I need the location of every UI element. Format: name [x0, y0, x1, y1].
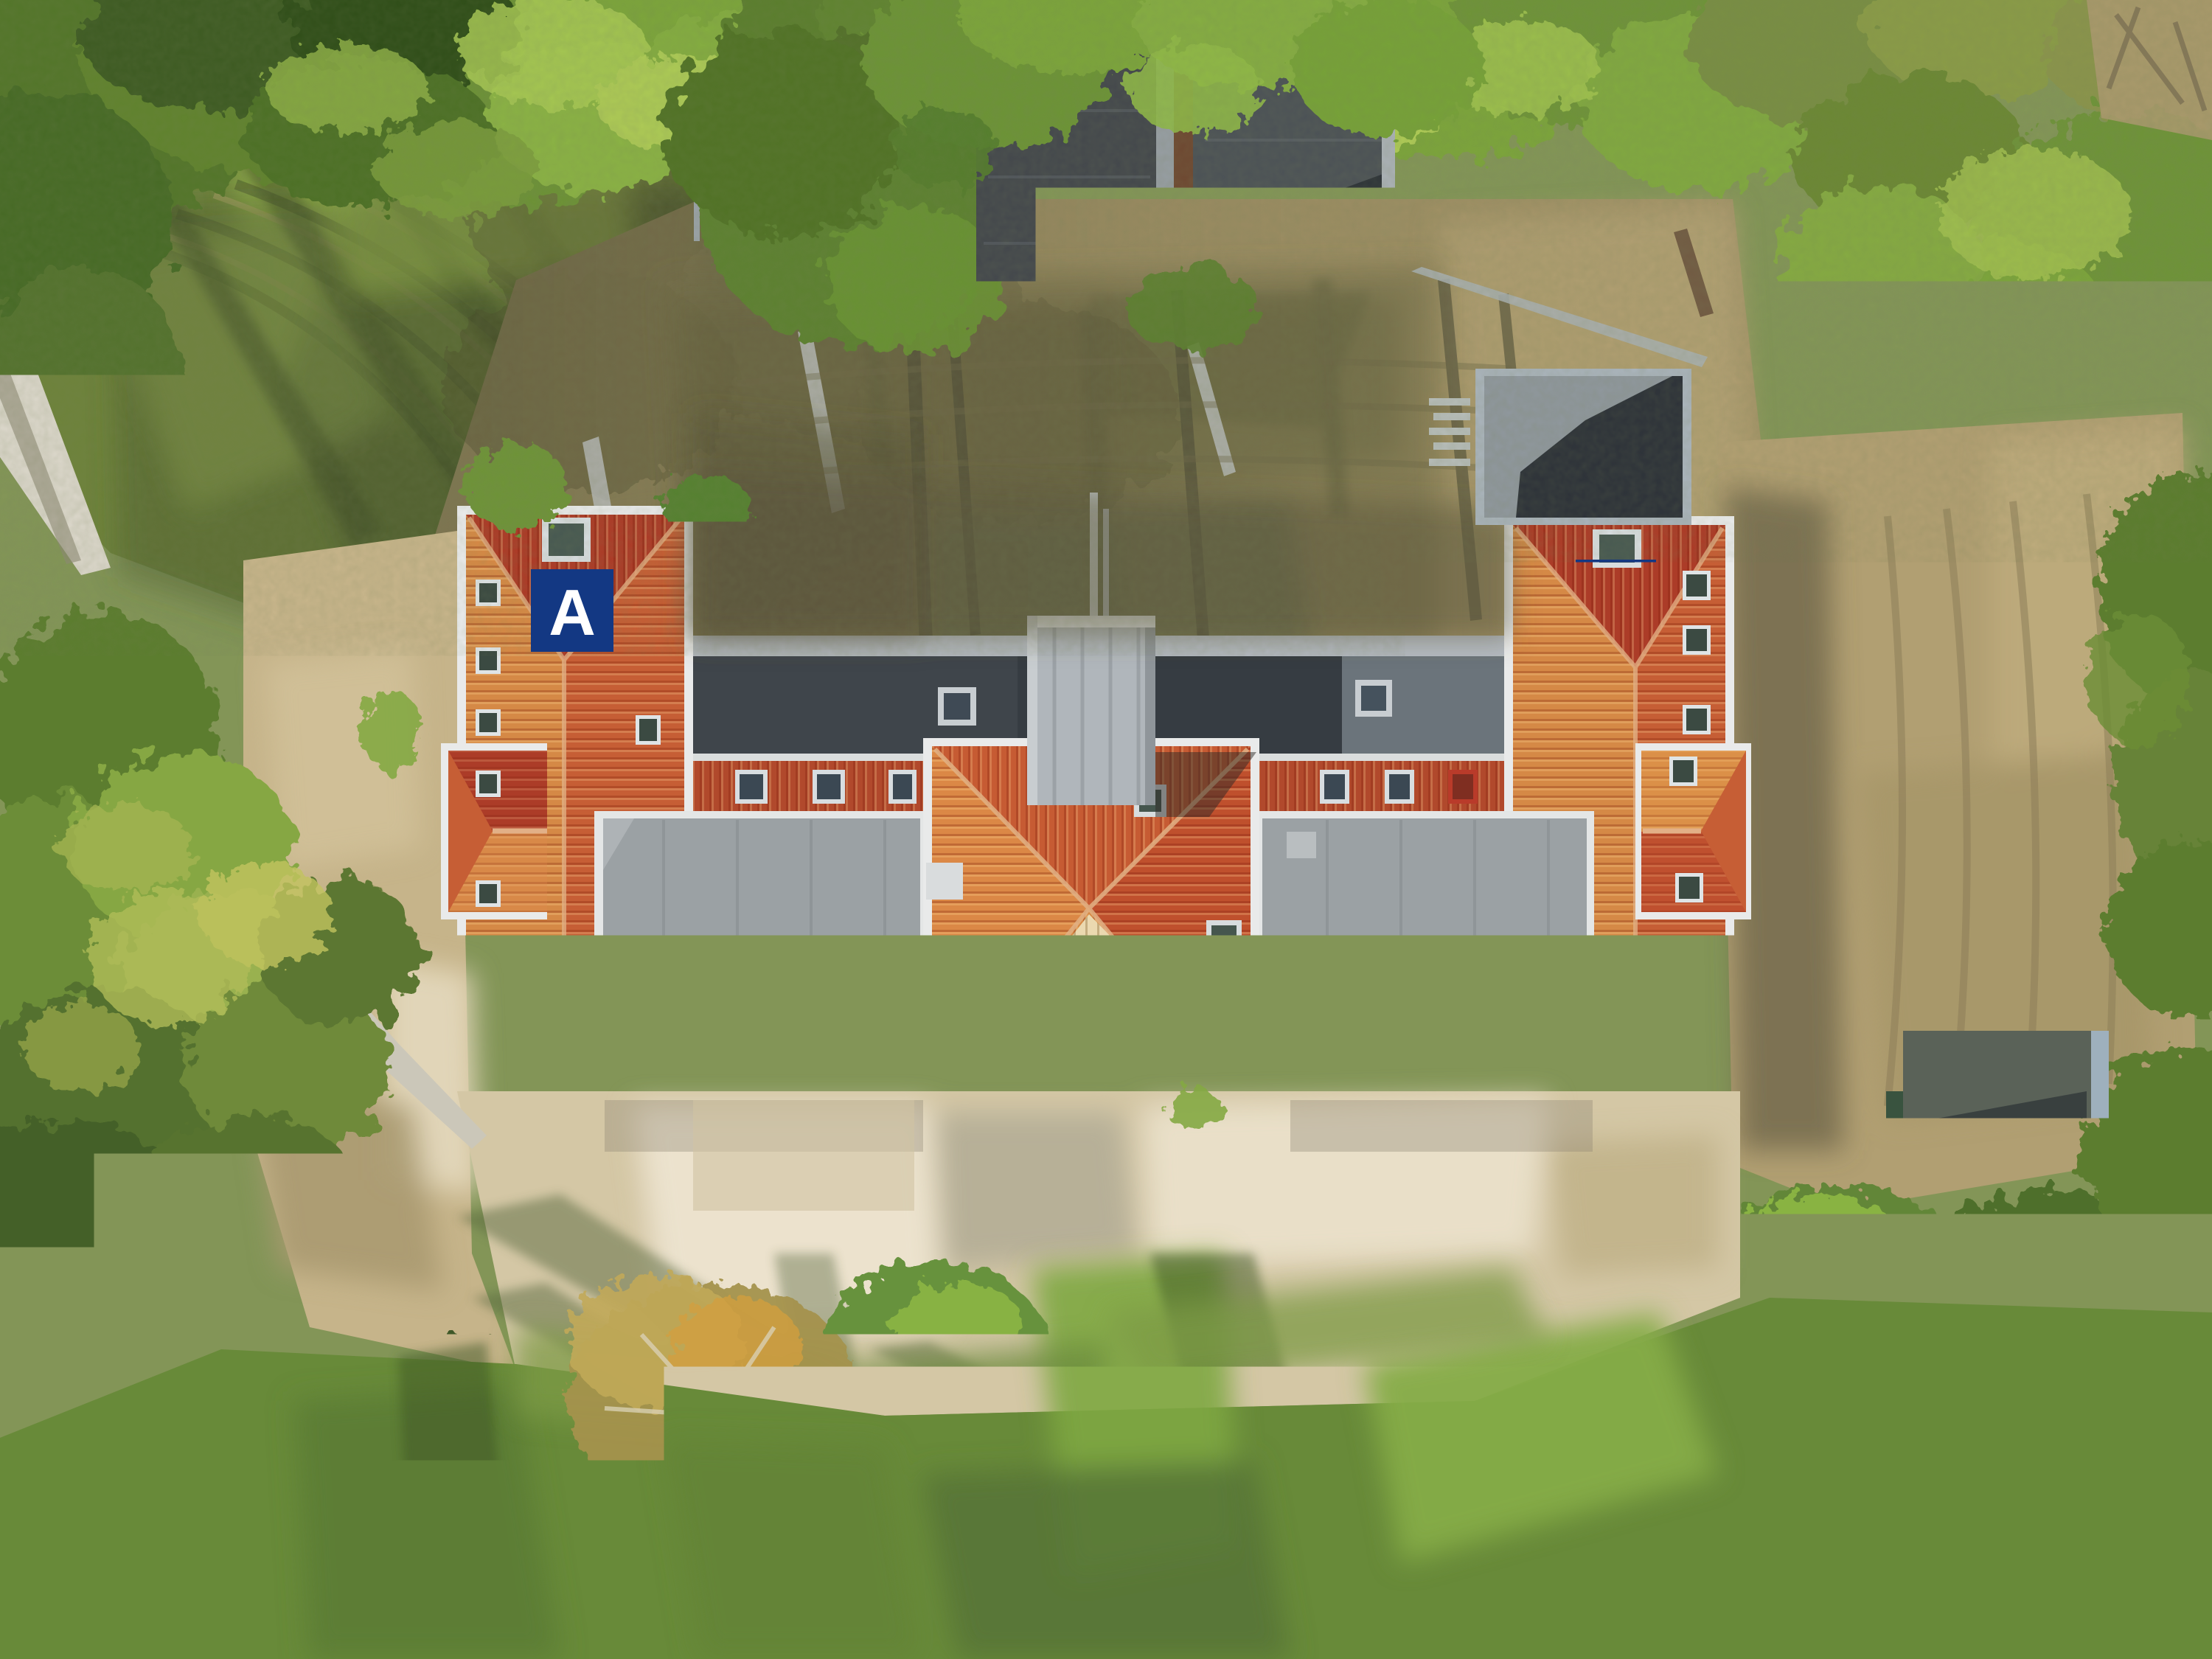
svg-text:C: C: [777, 902, 824, 975]
svg-text:E: E: [1362, 909, 1405, 982]
svg-text:G: G: [1590, 564, 1641, 637]
svg-text:B: B: [549, 1020, 596, 1093]
svg-text:F: F: [1596, 1027, 1636, 1100]
svg-text:A: A: [549, 576, 596, 649]
svg-text:D: D: [1070, 936, 1117, 1009]
